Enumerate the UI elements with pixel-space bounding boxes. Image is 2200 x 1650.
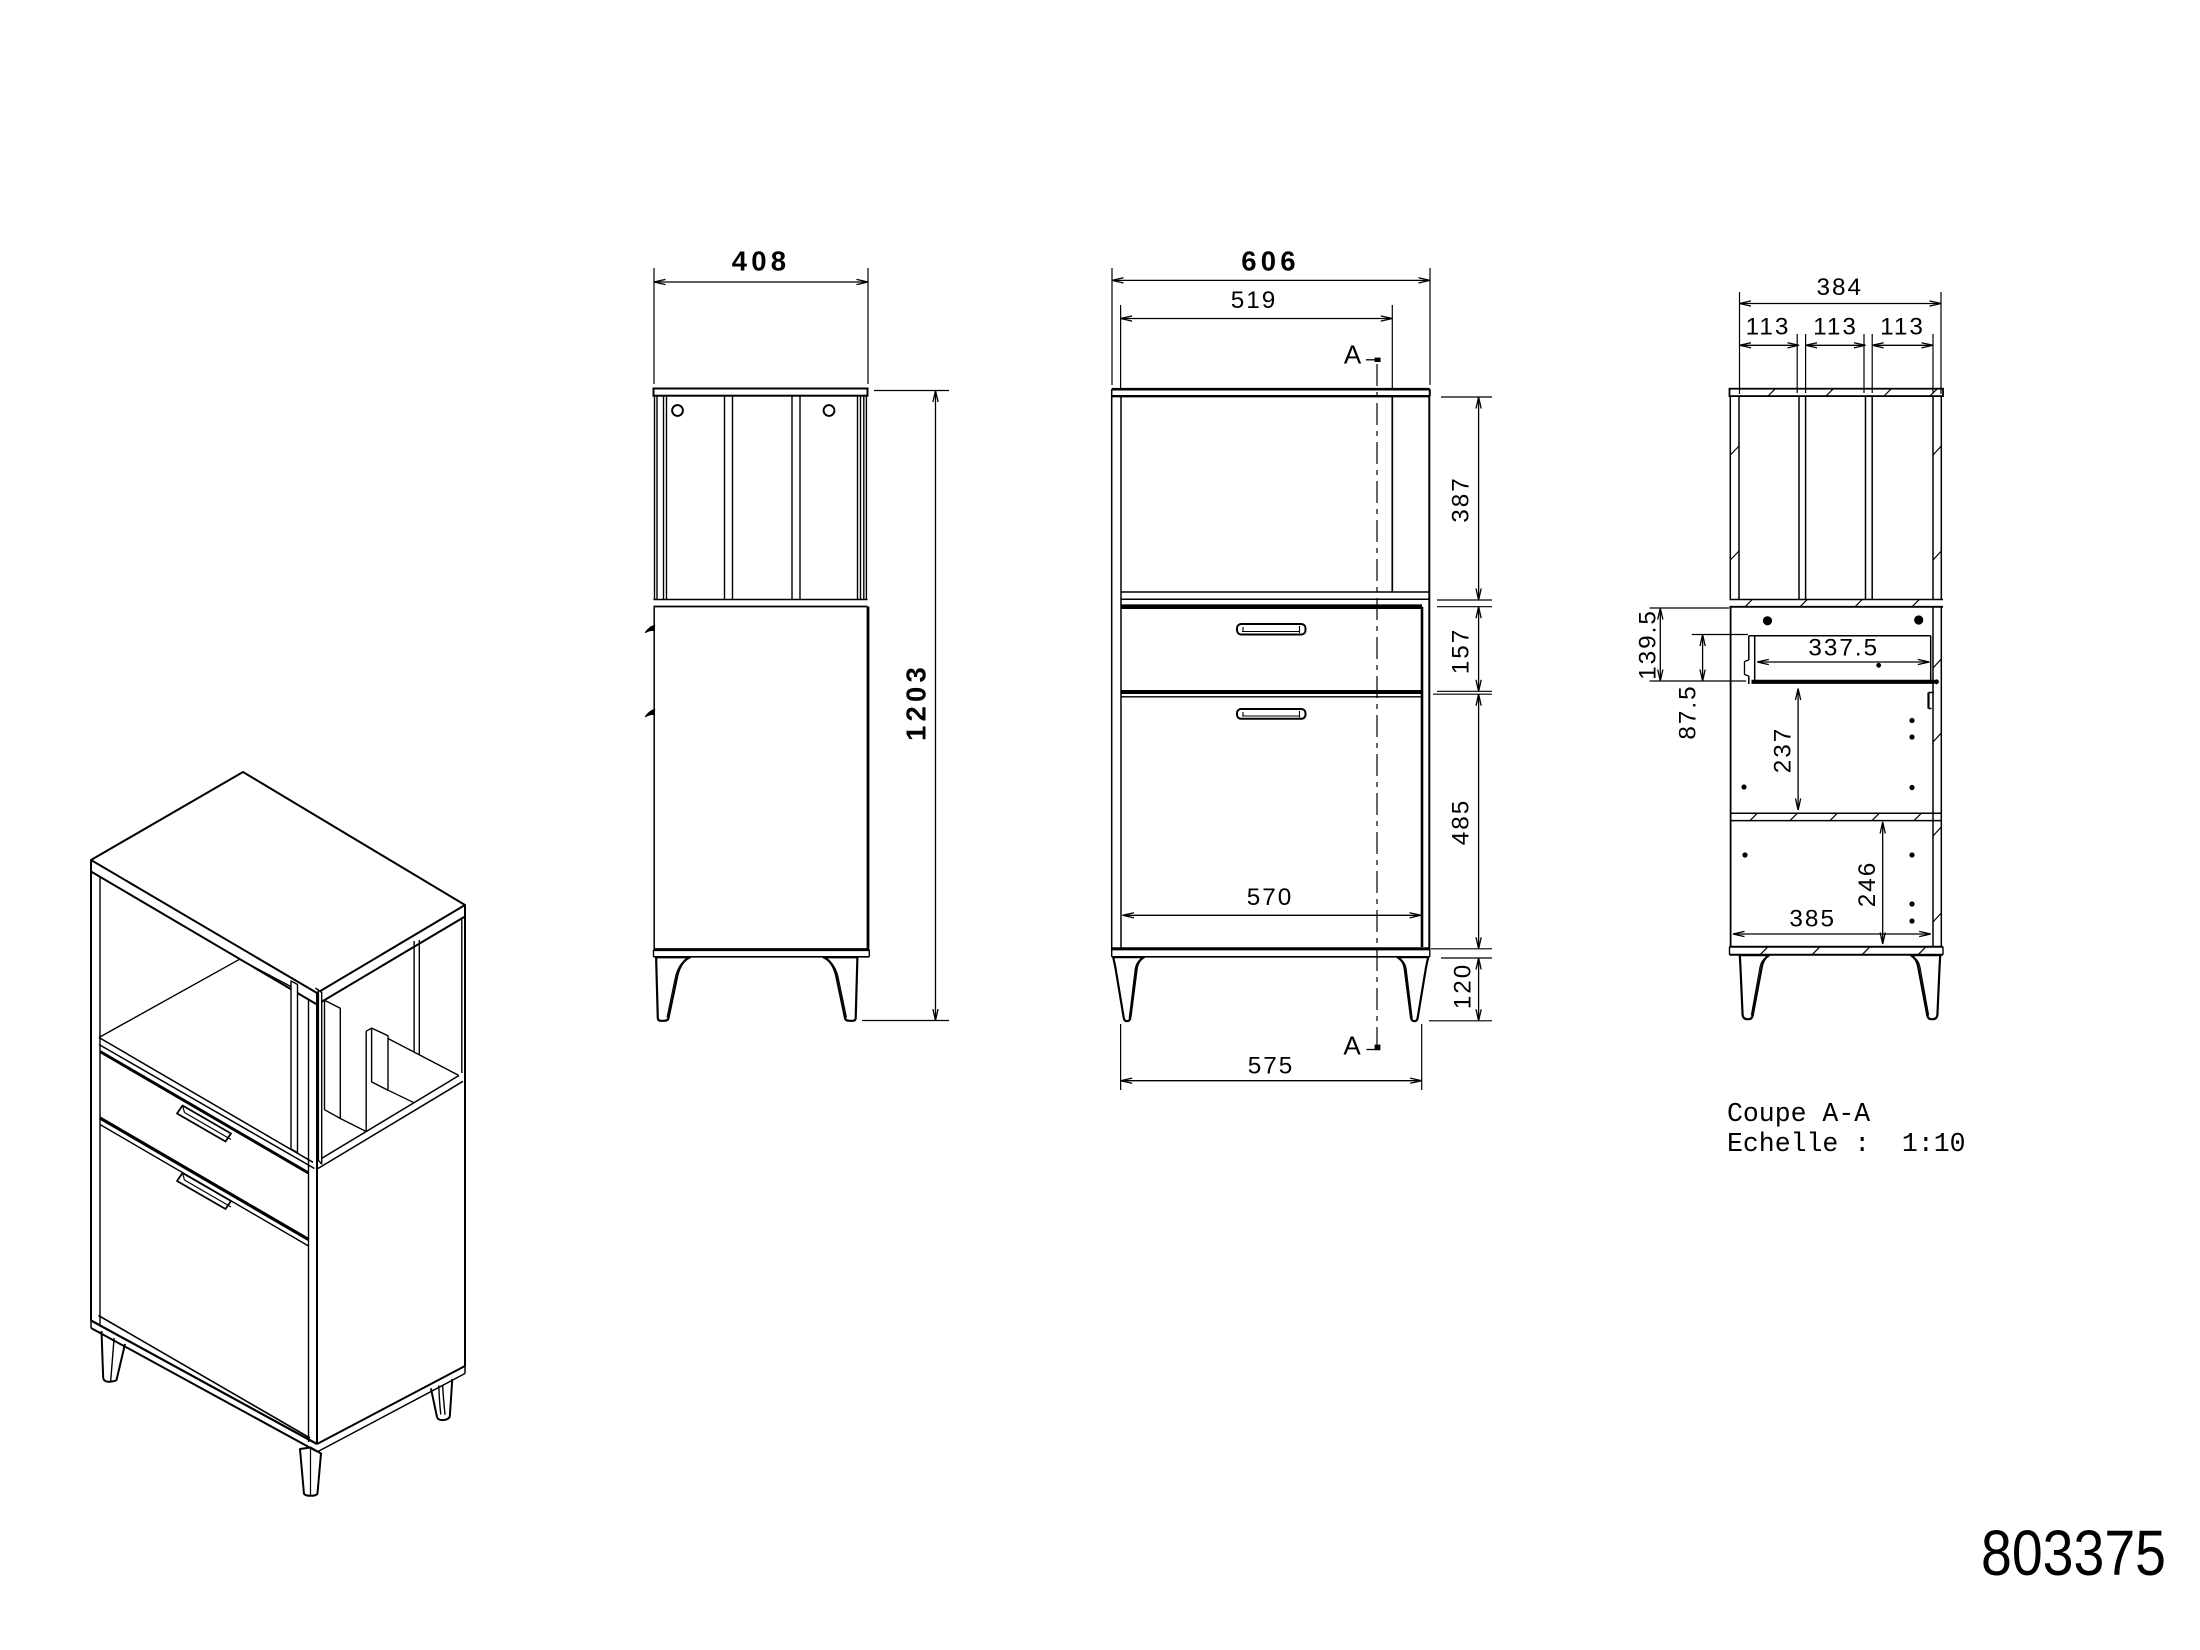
svg-text:Echelle : 1:10: Echelle : 1:10 bbox=[1727, 1129, 1966, 1159]
svg-text:1203: 1203 bbox=[901, 663, 932, 741]
svg-text:606: 606 bbox=[1241, 246, 1299, 277]
svg-text:237: 237 bbox=[1770, 727, 1797, 774]
svg-text:87.5: 87.5 bbox=[1675, 684, 1702, 739]
svg-text:A: A bbox=[1343, 1031, 1361, 1061]
svg-text:575: 575 bbox=[1248, 1053, 1295, 1080]
svg-text:Coupe A-A: Coupe A-A bbox=[1727, 1099, 1870, 1129]
svg-text:337.5: 337.5 bbox=[1808, 635, 1879, 662]
svg-text:246: 246 bbox=[1854, 861, 1881, 908]
svg-text:113: 113 bbox=[1880, 314, 1925, 341]
svg-text:113: 113 bbox=[1813, 314, 1858, 341]
svg-text:139.5: 139.5 bbox=[1635, 609, 1662, 680]
svg-text:803375: 803375 bbox=[1981, 1517, 2166, 1589]
svg-text:A: A bbox=[1344, 340, 1362, 370]
svg-text:519: 519 bbox=[1231, 287, 1278, 314]
svg-text:570: 570 bbox=[1247, 884, 1294, 911]
svg-text:485: 485 bbox=[1448, 799, 1475, 846]
svg-text:157: 157 bbox=[1448, 628, 1475, 675]
svg-text:120: 120 bbox=[1450, 963, 1477, 1010]
svg-text:387: 387 bbox=[1448, 476, 1475, 523]
svg-text:384: 384 bbox=[1817, 274, 1864, 301]
svg-text:385: 385 bbox=[1789, 906, 1836, 933]
svg-text:408: 408 bbox=[732, 246, 790, 277]
svg-text:113: 113 bbox=[1746, 314, 1791, 341]
